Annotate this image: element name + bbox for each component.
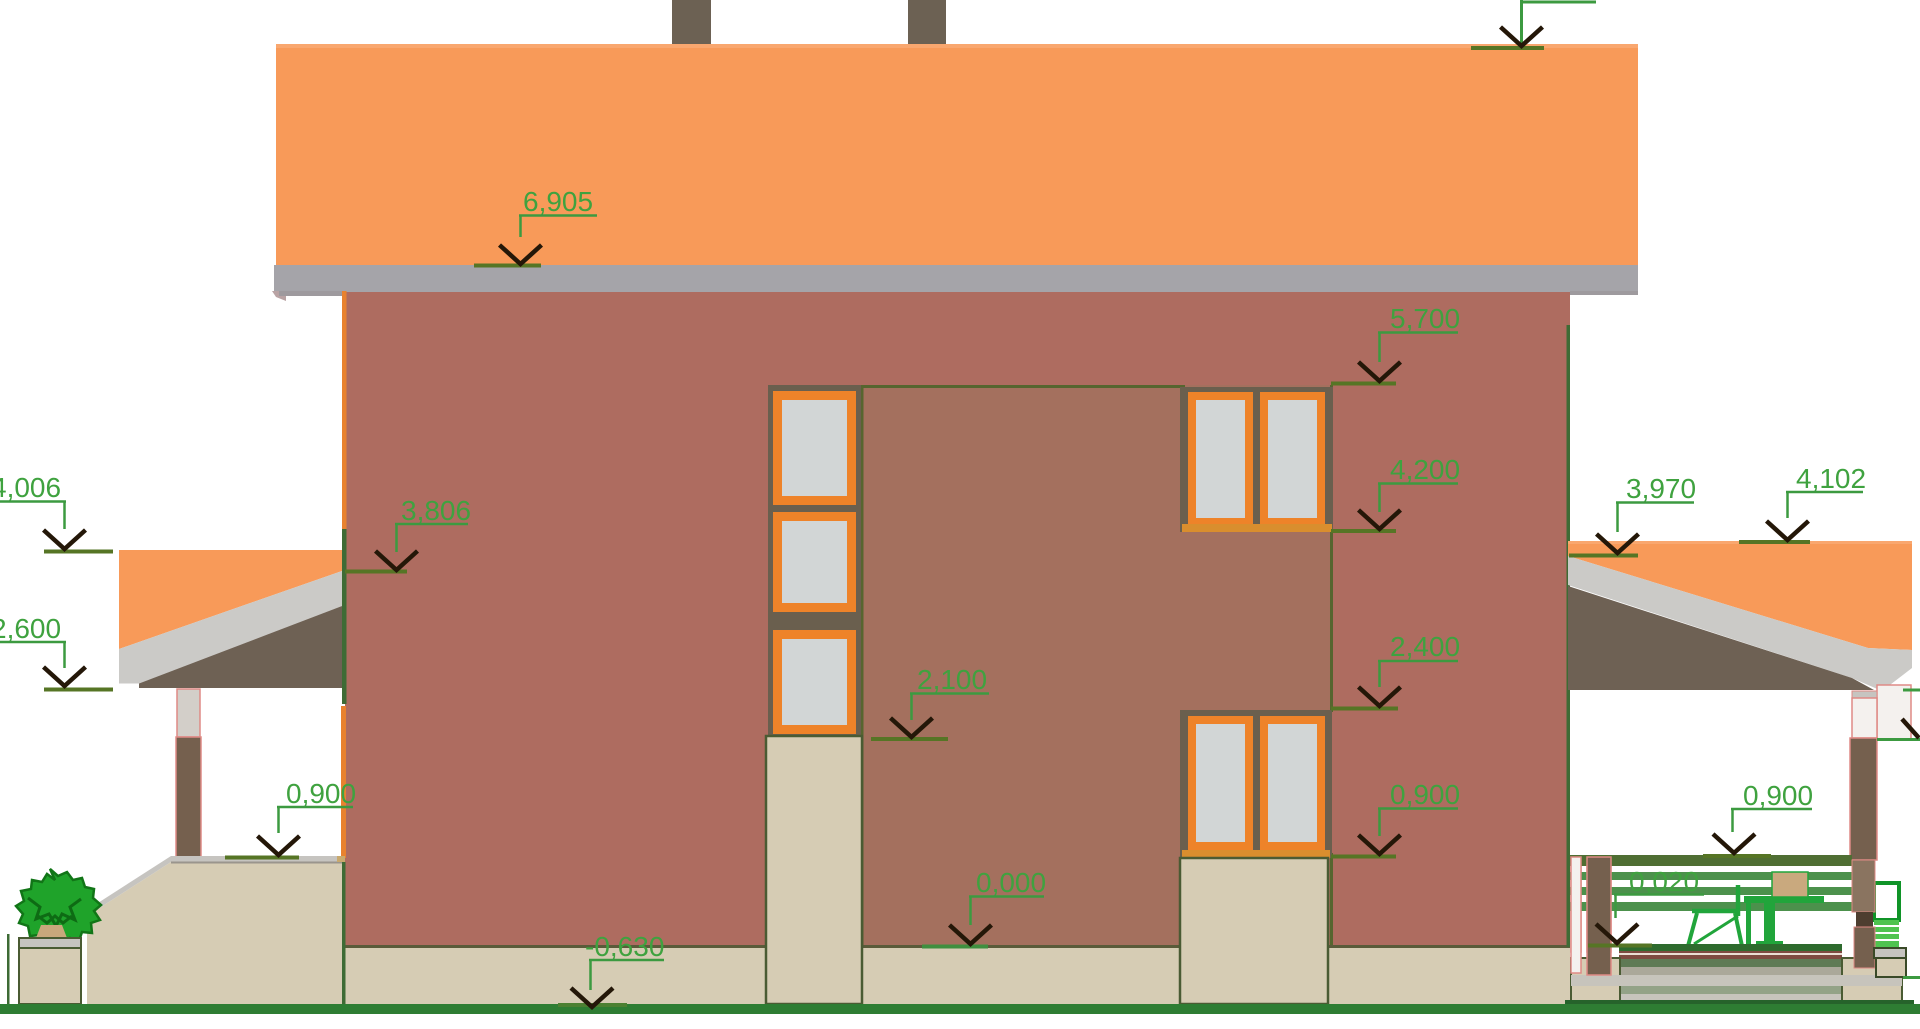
svg-text:3,806: 3,806 [401,495,471,526]
svg-text:6,905: 6,905 [523,186,593,217]
svg-text:0,900: 0,900 [286,778,356,809]
svg-text:2,400: 2,400 [1390,631,1460,662]
svg-text:0,900: 0,900 [1743,780,1813,811]
svg-text:4,200: 4,200 [1390,454,1460,485]
svg-text:4,006: 4,006 [0,472,61,503]
svg-text:4,102: 4,102 [1796,463,1866,494]
svg-text:2,100: 2,100 [917,664,987,695]
svg-text:3,970: 3,970 [1626,473,1696,504]
svg-text:2,600: 2,600 [0,613,61,644]
svg-text:5,700: 5,700 [1390,303,1460,334]
svg-text:0,000: 0,000 [976,867,1046,898]
svg-text:0,900: 0,900 [1390,779,1460,810]
svg-text:0,020: 0,020 [1629,866,1699,897]
svg-text:-0,630: -0,630 [585,931,664,962]
